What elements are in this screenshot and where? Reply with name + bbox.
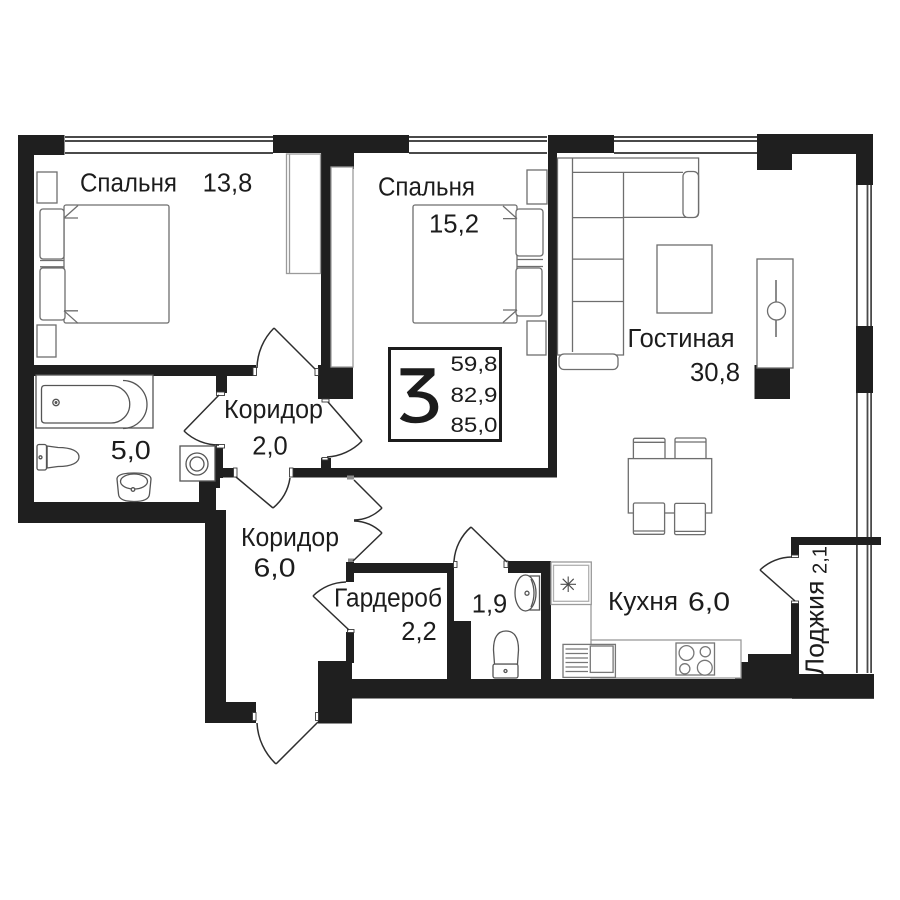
- svg-text:Кухня: Кухня: [608, 588, 678, 616]
- svg-text:Гардероб: Гардероб: [334, 585, 442, 613]
- svg-text:2,2: 2,2: [401, 618, 436, 646]
- svg-text:59,8: 59,8: [451, 352, 498, 376]
- svg-text:Спальня: Спальня: [378, 174, 475, 202]
- svg-text:Коридор: Коридор: [224, 396, 323, 424]
- svg-text:6,0: 6,0: [254, 555, 296, 583]
- svg-text:6,0: 6,0: [688, 589, 730, 617]
- svg-text:85,0: 85,0: [451, 413, 498, 437]
- svg-text:Гостиная: Гостиная: [628, 325, 735, 353]
- svg-text:Коридор: Коридор: [241, 524, 339, 552]
- svg-text:2,0: 2,0: [252, 433, 287, 461]
- svg-text:15,2: 15,2: [429, 211, 479, 239]
- svg-text:2,1: 2,1: [810, 546, 832, 574]
- svg-text:Спальня: Спальня: [80, 170, 177, 198]
- svg-text:Лоджия: Лоджия: [800, 581, 830, 676]
- svg-text:5,0: 5,0: [111, 435, 151, 465]
- svg-text:13,8: 13,8: [203, 170, 253, 198]
- svg-text:82,9: 82,9: [451, 383, 498, 407]
- svg-text:1,9: 1,9: [472, 591, 507, 619]
- svg-text:30,8: 30,8: [690, 359, 740, 387]
